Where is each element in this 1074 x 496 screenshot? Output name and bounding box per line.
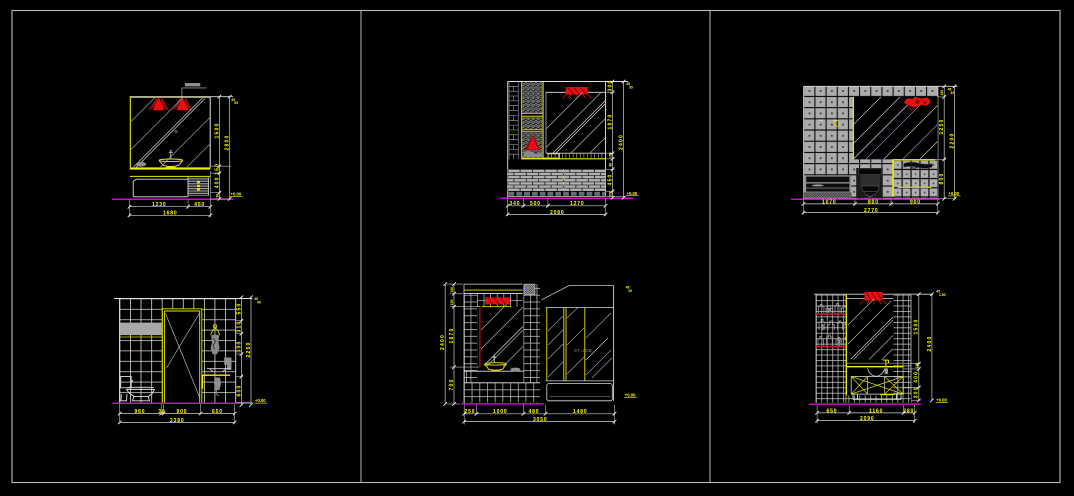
svg-text:240: 240	[450, 287, 454, 293]
svg-text:1870: 1870	[449, 328, 455, 344]
svg-text:1270: 1270	[570, 201, 585, 207]
svg-text:+0.00: +0.00	[625, 392, 636, 397]
svg-text:300: 300	[607, 80, 613, 92]
svg-text:500: 500	[530, 201, 541, 207]
svg-text:30: 30	[158, 409, 165, 415]
svg-text:1160: 1160	[869, 408, 883, 414]
svg-text:2380: 2380	[170, 418, 185, 424]
svg-text:+0.00: +0.00	[231, 192, 242, 197]
svg-text:2800: 2800	[225, 135, 231, 151]
svg-text:450: 450	[607, 174, 613, 186]
svg-text:2080: 2080	[550, 210, 565, 216]
svg-text:150: 150	[940, 90, 944, 96]
svg-text:800: 800	[939, 173, 945, 185]
svg-text:150: 150	[609, 152, 613, 158]
svg-text:1000: 1000	[493, 409, 508, 415]
svg-text:250: 250	[465, 409, 476, 415]
svg-text:550: 550	[236, 303, 242, 315]
svg-text:+0.00: +0.00	[627, 191, 638, 196]
svg-text:+0.00: +0.00	[949, 191, 960, 196]
svg-text:1870: 1870	[607, 114, 613, 130]
svg-text:900: 900	[910, 199, 921, 205]
svg-text:300: 300	[914, 386, 920, 398]
svg-text:650: 650	[827, 408, 838, 414]
svg-text:2200: 2200	[950, 133, 956, 149]
svg-text:ST=LDB: ST=LDB	[574, 348, 592, 353]
svg-text:600: 600	[236, 385, 242, 397]
svg-text:700: 700	[449, 379, 455, 391]
svg-text:400: 400	[914, 371, 920, 383]
svg-text:2400: 2400	[619, 134, 625, 150]
svg-text:400: 400	[214, 176, 220, 188]
svg-text:650: 650	[212, 409, 223, 415]
svg-text:2400: 2400	[440, 334, 446, 350]
svg-text:93: 93	[234, 101, 238, 105]
svg-text:1250: 1250	[939, 119, 945, 135]
svg-text:80: 80	[609, 163, 613, 167]
svg-text:1.50: 1.50	[939, 293, 946, 297]
svg-text:280: 280	[903, 408, 914, 414]
svg-text:150: 150	[609, 191, 613, 197]
svg-text:33: 33	[950, 91, 954, 95]
svg-text:2770: 2770	[864, 208, 879, 214]
svg-text:1230: 1230	[152, 202, 167, 208]
svg-text:00: 00	[628, 289, 632, 293]
svg-text:1480: 1480	[573, 409, 588, 415]
svg-text:1500: 1500	[214, 123, 220, 139]
svg-text:2250: 2250	[246, 342, 252, 358]
svg-text:2090: 2090	[860, 416, 875, 422]
svg-text:1680: 1680	[163, 211, 178, 217]
svg-text:30: 30	[216, 194, 220, 198]
svg-text:1070: 1070	[822, 199, 837, 205]
svg-text:800: 800	[868, 199, 879, 205]
svg-text:480: 480	[529, 409, 540, 415]
svg-text:900: 900	[177, 409, 188, 415]
svg-text:340: 340	[510, 201, 521, 207]
svg-text:150: 150	[214, 163, 220, 175]
svg-text:3050: 3050	[533, 417, 548, 423]
svg-text:2400: 2400	[927, 336, 933, 352]
svg-text:1500: 1500	[914, 319, 920, 335]
svg-text:150: 150	[915, 363, 919, 369]
svg-text:00: 00	[257, 300, 261, 304]
svg-text:300: 300	[236, 341, 242, 353]
svg-text:150: 150	[450, 299, 454, 305]
svg-text:960: 960	[135, 409, 146, 415]
svg-text:33: 33	[629, 85, 633, 89]
svg-text:450: 450	[194, 202, 205, 208]
svg-text:310: 310	[236, 321, 242, 333]
svg-text:+0.00: +0.00	[255, 398, 266, 403]
svg-text:+0.00: +0.00	[936, 398, 947, 403]
